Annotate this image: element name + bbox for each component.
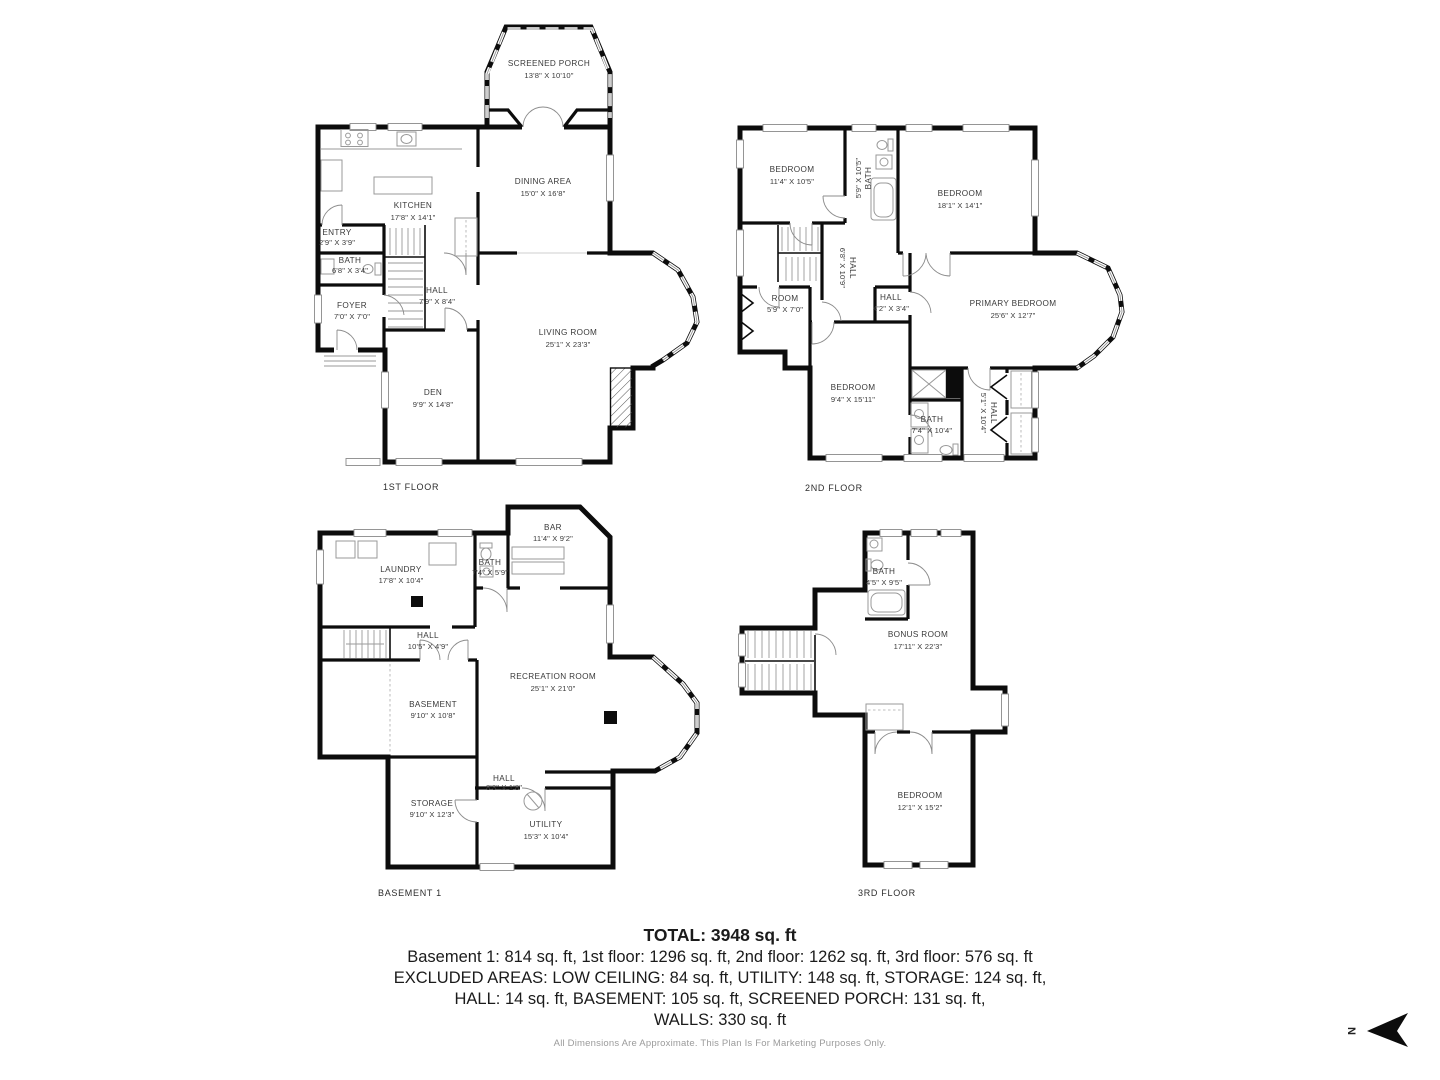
room-label: BEDROOM bbox=[938, 189, 983, 198]
washer-icon bbox=[336, 541, 355, 558]
room-dims: 4'5" X 9'5" bbox=[866, 578, 902, 587]
floor-plan-drawing: SCREENED PORCH 13'8" X 10'10" KITCHEN 17… bbox=[0, 0, 1440, 1080]
room-label: LIVING ROOM bbox=[539, 328, 597, 337]
room-label: DINING AREA bbox=[515, 177, 572, 186]
kitchen-island bbox=[374, 177, 432, 194]
floor-label: 2ND FLOOR bbox=[805, 483, 863, 493]
first-floor-plan: SCREENED PORCH 13'8" X 10'10" KITCHEN 17… bbox=[315, 27, 698, 492]
room-dims: 15'3" X 10'4" bbox=[524, 832, 569, 841]
room-label: BATH bbox=[339, 256, 362, 265]
basement-floor-plan: BAR 11'4" X 9'2" LAUNDRY 17'8" X 10'4" B… bbox=[317, 507, 698, 898]
second-floor-plan: BEDROOM 11'4" X 10'5" BATH 5'9" X 10'5" … bbox=[737, 125, 1123, 494]
room-dims: 10'5" X 4'9" bbox=[408, 642, 449, 651]
first-floor-windows bbox=[315, 29, 698, 466]
room-dims: 9'4" X 15'11" bbox=[831, 395, 875, 404]
excluded-areas-1: EXCLUDED AREAS: LOW CEILING: 84 sq. ft, … bbox=[0, 968, 1440, 989]
room-dims: 9'10" X 12'3" bbox=[410, 810, 455, 819]
room-label: DEN bbox=[424, 388, 442, 397]
room-dims: 6'8" X 3'4" bbox=[332, 266, 368, 275]
support-post bbox=[604, 711, 617, 724]
room-label: BATH bbox=[873, 567, 896, 576]
third-floor-plan: BATH 4'5" X 9'5" BONUS ROOM 17'11" X 22'… bbox=[739, 530, 1009, 899]
room-label: HALL bbox=[493, 774, 515, 783]
chimney bbox=[946, 369, 962, 398]
room-dims: 6'8" X 10'9" bbox=[838, 248, 847, 289]
room-label: BEDROOM bbox=[831, 383, 876, 392]
excluded-areas-2: HALL: 14 sq. ft, BASEMENT: 105 sq. ft, S… bbox=[0, 989, 1440, 1010]
room-label: ENTRY bbox=[322, 228, 352, 237]
floor-label: 1ST FLOOR bbox=[383, 482, 439, 492]
room-label: HALL bbox=[417, 631, 439, 640]
refrigerator bbox=[321, 160, 342, 191]
room-dims: 12'1" X 15'2" bbox=[898, 803, 943, 812]
room-dims: 17'8" X 14'1" bbox=[391, 213, 436, 222]
room-label: HALL bbox=[848, 257, 857, 279]
room-dims: 17'11" X 22'3" bbox=[894, 642, 943, 651]
room-label: BEDROOM bbox=[770, 165, 815, 174]
room-dims: 9'9" X 14'8" bbox=[413, 400, 454, 409]
room-label: HALL bbox=[426, 286, 448, 295]
room-dims: 8'3" X 1'8" bbox=[486, 783, 522, 792]
room-label: LAUNDRY bbox=[380, 565, 422, 574]
basement-labels: BAR 11'4" X 9'2" LAUNDRY 17'8" X 10'4" B… bbox=[378, 523, 596, 898]
bathtub-icon bbox=[868, 590, 905, 615]
room-dims: 18'1" X 14'1" bbox=[938, 201, 983, 210]
room-label: STORAGE bbox=[411, 799, 454, 808]
first-floor-interior-walls bbox=[318, 110, 610, 462]
room-dims: 9'10" X 10'8" bbox=[411, 711, 456, 720]
room-dims: 5'1" X 10'4" bbox=[979, 393, 988, 434]
room-dims: 13'8" X 10'10" bbox=[524, 71, 573, 80]
room-label: KITCHEN bbox=[394, 201, 432, 210]
total-area: TOTAL: 3948 sq. ft bbox=[0, 925, 1440, 946]
basement-stairs bbox=[344, 630, 390, 753]
floor-label: 3RD FLOOR bbox=[858, 888, 916, 898]
room-label: RECREATION ROOM bbox=[510, 672, 596, 681]
room-dims: 11'4" X 9'2" bbox=[533, 534, 573, 543]
toilet-icon bbox=[940, 446, 952, 455]
room-label: UTILITY bbox=[530, 820, 563, 829]
room-dims: 5'9" X 10'5" bbox=[854, 158, 863, 199]
room-label: BAR bbox=[544, 523, 562, 532]
room-dims: 7'4" X 5'9" bbox=[472, 568, 508, 577]
room-label: SCREENED PORCH bbox=[508, 59, 590, 68]
dryer-icon bbox=[358, 541, 377, 558]
room-label: HALL bbox=[989, 402, 998, 424]
first-floor-stairs bbox=[388, 228, 423, 327]
walls-area: WALLS: 330 sq. ft bbox=[0, 1010, 1440, 1031]
room-dims: 7'0" X 7'0" bbox=[334, 312, 370, 321]
bar-counter bbox=[512, 547, 564, 559]
floor-areas: Basement 1: 814 sq. ft, 1st floor: 1296 … bbox=[0, 947, 1440, 968]
fireplace bbox=[611, 368, 633, 428]
room-dims: 25'6" X 12'7" bbox=[991, 311, 1036, 320]
room-dims: 25'1" X 21'0" bbox=[531, 684, 576, 693]
room-label: HALL bbox=[880, 293, 902, 302]
room-label: BONUS ROOM bbox=[888, 630, 948, 639]
room-dims: 15'0" X 16'8" bbox=[521, 189, 566, 198]
summary-block: TOTAL: 3948 sq. ft Basement 1: 814 sq. f… bbox=[0, 925, 1440, 1049]
room-dims: 5'9" X 7'0" bbox=[767, 305, 803, 314]
room-label: BEDROOM bbox=[898, 791, 943, 800]
room-label: BATH bbox=[864, 167, 873, 190]
room-dims: 11'4" X 10'5" bbox=[770, 177, 814, 186]
floor-label: BASEMENT 1 bbox=[378, 888, 442, 898]
room-label: FOYER bbox=[337, 301, 367, 310]
room-label: BASEMENT bbox=[409, 700, 457, 709]
basement-interior-walls bbox=[320, 533, 613, 867]
toilet-icon bbox=[877, 141, 887, 150]
third-floor-stairs bbox=[745, 631, 814, 690]
room-dims: 17'8" X 10'4" bbox=[379, 576, 424, 585]
second-floor-windows bbox=[737, 125, 1123, 462]
disclaimer-text: All Dimensions Are Approximate. This Pla… bbox=[0, 1038, 1440, 1049]
room-label: BATH bbox=[479, 558, 502, 567]
room-dims: 25'1" X 23'3" bbox=[546, 340, 591, 349]
room-dims: 4'2" X 3'4" bbox=[873, 304, 909, 313]
room-dims: 2'9" X 3'9" bbox=[319, 238, 355, 247]
room-dims: 7'4" X 10'4" bbox=[912, 426, 953, 435]
closet bbox=[866, 704, 903, 730]
second-floor-stairs bbox=[782, 227, 818, 281]
room-label: ROOM bbox=[772, 294, 799, 303]
room-label: PRIMARY BEDROOM bbox=[970, 299, 1057, 308]
floor-plan-page: SCREENED PORCH 13'8" X 10'10" KITCHEN 17… bbox=[0, 0, 1440, 1080]
room-label: BATH bbox=[921, 415, 944, 424]
room-dims: 7'9" X 8'4" bbox=[419, 297, 455, 306]
